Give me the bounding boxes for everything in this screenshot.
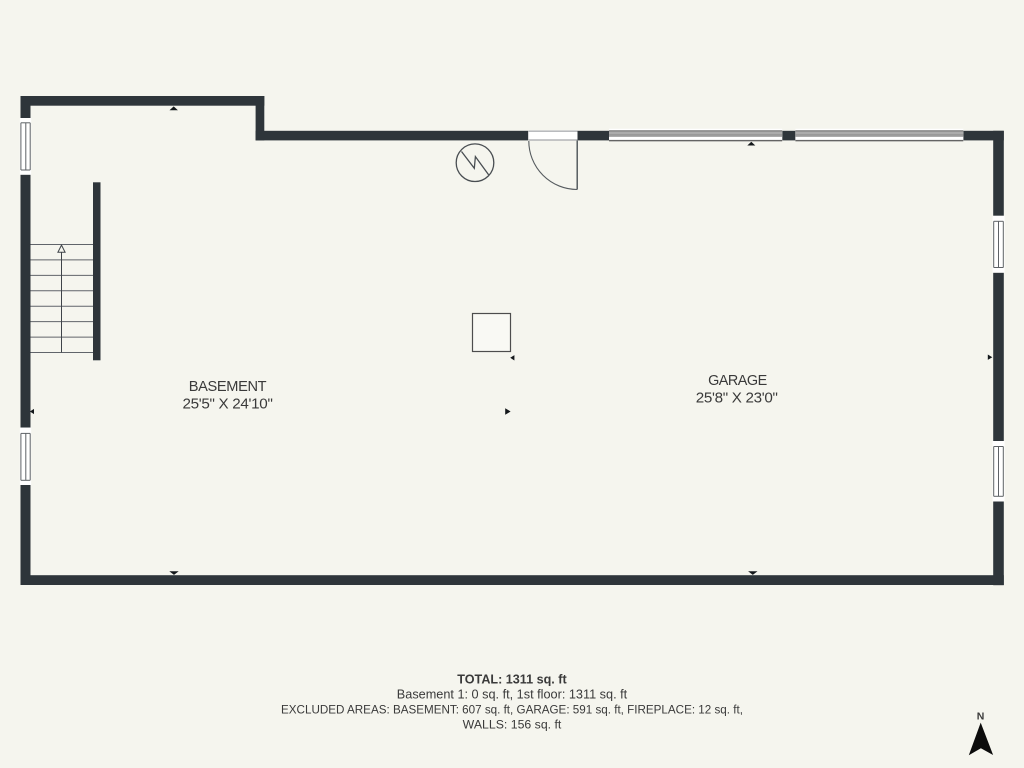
svg-text:N: N (977, 711, 985, 723)
svg-text:25'8" X 23'0": 25'8" X 23'0" (696, 390, 778, 407)
svg-text:TOTAL: 1311 sq. ft: TOTAL: 1311 sq. ft (457, 673, 567, 687)
svg-text:Basement 1: 0 sq. ft, 1st floo: Basement 1: 0 sq. ft, 1st floor: 1311 sq… (397, 688, 628, 702)
svg-text:WALLS: 156 sq. ft: WALLS: 156 sq. ft (463, 718, 562, 732)
svg-text:BASEMENT: BASEMENT (189, 379, 267, 395)
svg-text:25'5" X 24'10": 25'5" X 24'10" (182, 396, 272, 413)
svg-text:EXCLUDED AREAS: BASEMENT: 607: EXCLUDED AREAS: BASEMENT: 607 sq. ft, GA… (281, 704, 743, 717)
svg-text:GARAGE: GARAGE (708, 373, 767, 389)
